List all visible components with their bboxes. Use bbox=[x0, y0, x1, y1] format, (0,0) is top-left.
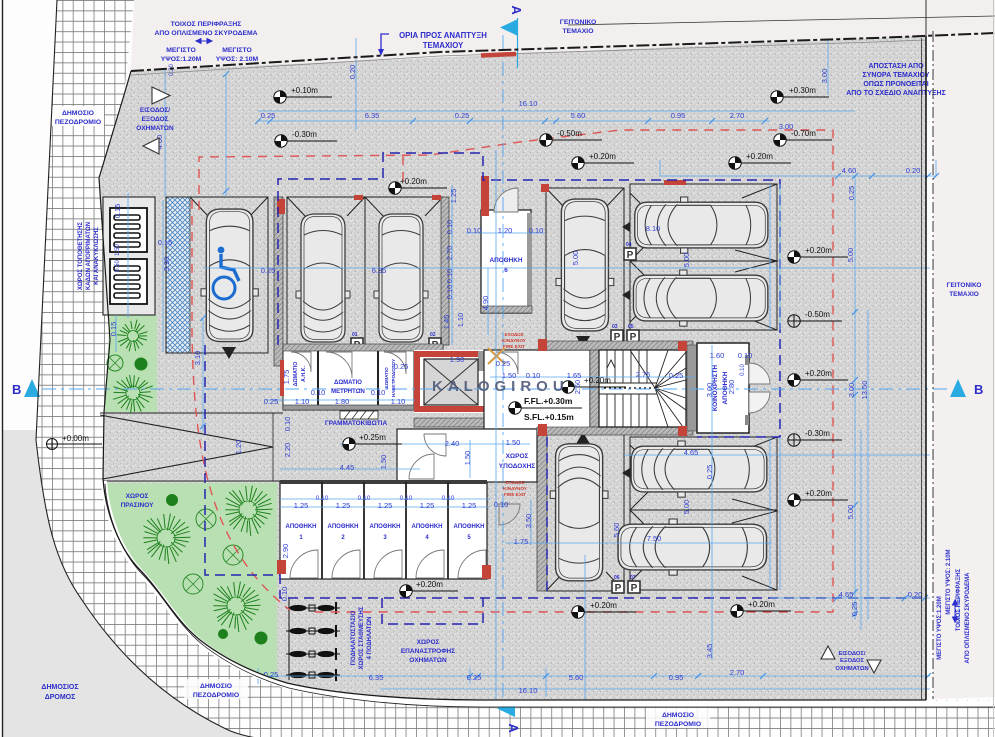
svg-text:ΑΠΟΘΗΚΗ: ΑΠΟΘΗΚΗ bbox=[722, 371, 729, 404]
svg-text:3.50: 3.50 bbox=[524, 514, 533, 529]
svg-text:0.95: 0.95 bbox=[671, 111, 686, 120]
svg-text:ΑΠΟΘΗΚΗ: ΑΠΟΘΗΚΗ bbox=[412, 524, 443, 530]
svg-text:+0.30m: +0.30m bbox=[789, 86, 816, 95]
svg-text:03: 03 bbox=[612, 324, 618, 330]
svg-text:A: A bbox=[506, 723, 521, 733]
svg-text:0.10: 0.10 bbox=[316, 495, 329, 502]
svg-text:ΟΠΩΣ ΠΡΟΝΟΕΙΤΑΙ: ΟΠΩΣ ΠΡΟΝΟΕΙΤΑΙ bbox=[863, 81, 928, 88]
svg-text:ΟΡΙΑ ΠΡΟΣ ΑΝΑΠΤΥΞΗ: ΟΡΙΑ ΠΡΟΣ ΑΝΑΠΤΥΞΗ bbox=[399, 31, 487, 40]
svg-text:0.10: 0.10 bbox=[526, 371, 541, 380]
svg-text:ΕΞΟΔΟΣ: ΕΞΟΔΟΣ bbox=[840, 658, 864, 664]
svg-text:1.25: 1.25 bbox=[378, 501, 393, 510]
svg-text:0.10: 0.10 bbox=[445, 269, 454, 284]
svg-text:ΧΩΡΟΣ ΣΤΑΘΜΕΥΣΗΣ: ΧΩΡΟΣ ΣΤΑΘΜΕΥΣΗΣ bbox=[359, 606, 365, 669]
svg-text:0.50: 0.50 bbox=[115, 260, 121, 272]
svg-text:0.25: 0.25 bbox=[850, 602, 859, 617]
svg-text:5.00: 5.00 bbox=[846, 505, 855, 520]
svg-text:0.10: 0.10 bbox=[311, 388, 326, 397]
svg-text:ΓΕΙΤΟΝΙΚΟ: ΓΕΙΤΟΝΙΚΟ bbox=[947, 282, 982, 289]
svg-text:2.70: 2.70 bbox=[730, 668, 745, 677]
svg-text:0.15: 0.15 bbox=[113, 204, 122, 219]
svg-text:5.00: 5.00 bbox=[571, 251, 580, 266]
svg-text:8.10: 8.10 bbox=[646, 224, 661, 233]
svg-text:-0.70m: -0.70m bbox=[791, 129, 816, 138]
svg-text:ΔΡΟΜΟΣ: ΔΡΟΜΟΣ bbox=[45, 694, 76, 701]
svg-text:1.75: 1.75 bbox=[514, 537, 529, 546]
svg-text:4.60: 4.60 bbox=[842, 166, 857, 175]
svg-text:ΑΠΟΣΤΑΣΗ ΑΠΟ: ΑΠΟΣΤΑΣΗ ΑΠΟ bbox=[868, 63, 924, 70]
svg-text:ΠΕΖΟΔΡΟΜΙΟ: ΠΕΖΟΔΡΟΜΙΟ bbox=[55, 119, 101, 126]
svg-text:ΔΗΜΟΣΙΟ: ΔΗΜΟΣΙΟ bbox=[62, 110, 94, 117]
svg-text:4.45: 4.45 bbox=[340, 463, 355, 472]
svg-text:0.95: 0.95 bbox=[669, 673, 684, 682]
svg-text:7.50: 7.50 bbox=[647, 534, 662, 543]
svg-text:1.45: 1.45 bbox=[442, 315, 451, 330]
svg-text:1.20: 1.20 bbox=[234, 440, 243, 455]
svg-text:ΔΗΜΟΣΙΟ: ΔΗΜΟΣΙΟ bbox=[662, 712, 694, 719]
svg-text:01: 01 bbox=[352, 332, 358, 338]
svg-text:+0.20m: +0.20m bbox=[416, 580, 443, 589]
svg-text:ΜΕΓΙΣΤΟ ΥΨΟΣ: 2.10Μ: ΜΕΓΙΣΤΟ ΥΨΟΣ: 2.10Μ bbox=[946, 549, 952, 614]
svg-text:0.10: 0.10 bbox=[467, 226, 482, 235]
svg-text:1.50: 1.50 bbox=[379, 455, 388, 470]
svg-text:6: 6 bbox=[504, 267, 508, 274]
svg-text:ΑΠΟΘΗΚΗ: ΑΠΟΘΗΚΗ bbox=[489, 257, 522, 264]
svg-text:KALOGIROU: KALOGIROU bbox=[432, 378, 569, 395]
svg-text:1.50: 1.50 bbox=[506, 438, 521, 447]
svg-text:-0.30m: -0.30m bbox=[805, 429, 830, 438]
svg-text:0.15: 0.15 bbox=[158, 238, 173, 247]
svg-text:1.60: 1.60 bbox=[710, 351, 725, 360]
svg-text:ΤΟΙΧΟΣ ΠΕΡΙΦΡΑΞΗΣ: ΤΟΙΧΟΣ ΠΕΡΙΦΡΑΞΗΣ bbox=[171, 21, 242, 28]
svg-text:ΔΩΜΑΤΙΟ: ΔΩΜΑΤΙΟ bbox=[293, 362, 299, 387]
svg-text:0.25: 0.25 bbox=[264, 397, 279, 406]
svg-text:ΜΕΓΙΣΤΟ: ΜΕΓΙΣΤΟ bbox=[166, 47, 196, 54]
svg-text:-0.50m: -0.50m bbox=[805, 310, 830, 319]
svg-text:07: 07 bbox=[630, 575, 636, 581]
svg-text:ΑΠΟΘΗΚΗ: ΑΠΟΘΗΚΗ bbox=[454, 524, 485, 530]
svg-text:+0.20m: +0.20m bbox=[805, 369, 832, 378]
svg-text:ΕΠΑΝΑΣΤΡΟΦΗΣ: ΕΠΑΝΑΣΤΡΟΦΗΣ bbox=[401, 648, 455, 655]
svg-text:ΑΠΟ ΟΠΛΙΣΜΕΝΟ ΣΚΥΡΟΔΕΜΑ: ΑΠΟ ΟΠΛΙΣΜΕΝΟ ΣΚΥΡΟΔΕΜΑ bbox=[965, 572, 971, 664]
svg-text:ΑΠΟΘΗΚΗ: ΑΠΟΘΗΚΗ bbox=[286, 524, 317, 530]
svg-text:2.70: 2.70 bbox=[445, 246, 454, 261]
svg-text:1.10: 1.10 bbox=[391, 397, 406, 406]
svg-text:ΕΙΣΟΔΟΣ/: ΕΙΣΟΔΟΣ/ bbox=[140, 107, 170, 114]
svg-text:5.00: 5.00 bbox=[846, 248, 855, 263]
svg-text:S.FL.+0.15m: S.FL.+0.15m bbox=[524, 412, 574, 422]
svg-text:1.75: 1.75 bbox=[282, 370, 291, 385]
svg-text:3.10: 3.10 bbox=[193, 351, 202, 366]
svg-text:ΑΠΟ ΤΟ ΣΧΕΔΙΟ ΑΝΑΠΤΥΞΗΣ: ΑΠΟ ΤΟ ΣΧΕΔΙΟ ΑΝΑΠΤΥΞΗΣ bbox=[846, 90, 946, 97]
svg-text:ΔΗΜΟΣΙΟΣ: ΔΗΜΟΣΙΟΣ bbox=[41, 684, 78, 691]
svg-text:2.50: 2.50 bbox=[573, 380, 582, 395]
svg-text:0.25: 0.25 bbox=[847, 186, 856, 201]
svg-text:1.25: 1.25 bbox=[462, 501, 477, 510]
svg-text:Α.Η.Κ.: Α.Η.Κ. bbox=[301, 366, 307, 382]
svg-text:1.90: 1.90 bbox=[450, 355, 465, 364]
svg-text:ΕΞΟΔΟΣ: ΕΞΟΔΟΣ bbox=[506, 480, 525, 485]
svg-text:2.40: 2.40 bbox=[445, 439, 460, 448]
svg-text:16.10: 16.10 bbox=[519, 99, 538, 108]
svg-text:+0.20m: +0.20m bbox=[589, 152, 616, 161]
svg-text:1.25: 1.25 bbox=[420, 501, 435, 510]
svg-text:ΠΕΖΟΔΡΟΜΙΟ: ΠΕΖΟΔΡΟΜΙΟ bbox=[193, 692, 239, 699]
svg-text:04: 04 bbox=[626, 242, 632, 248]
svg-text:ΤΟΙΧΟΣ ΠΕΡΙΦΡΑΞΗΣ: ΤΟΙΧΟΣ ΠΕΡΙΦΡΑΞΗΣ bbox=[956, 568, 962, 631]
svg-text:1.50: 1.50 bbox=[502, 371, 517, 380]
svg-text:ΟΧΗΜΑΤΩΝ: ΟΧΗΜΑΤΩΝ bbox=[835, 666, 868, 672]
svg-text:+0.20m: +0.20m bbox=[805, 489, 832, 498]
svg-text:ΟΧΗΜΑΤΩΝ: ΟΧΗΜΑΤΩΝ bbox=[409, 657, 447, 664]
svg-text:-0.30m: -0.30m bbox=[292, 130, 317, 139]
svg-text:ΑΠΟ ΟΠΛΙΣΜΕΝΟ ΣΚΥΡΟΔΕΜΑ: ΑΠΟ ΟΠΛΙΣΜΕΝΟ ΣΚΥΡΟΔΕΜΑ bbox=[154, 30, 257, 37]
svg-text:1.80: 1.80 bbox=[335, 397, 350, 406]
svg-text:6.35: 6.35 bbox=[365, 111, 380, 120]
svg-text:A: A bbox=[509, 5, 524, 15]
svg-text:-0.50m: -0.50m bbox=[557, 129, 582, 138]
svg-text:ΧΩΡΟΣ: ΧΩΡΟΣ bbox=[506, 453, 529, 460]
svg-text:ΔΗΜΟΣΙΟ: ΔΗΜΟΣΙΟ bbox=[200, 683, 232, 690]
svg-text:+0.00m: +0.00m bbox=[62, 434, 89, 443]
svg-text:0.25: 0.25 bbox=[455, 111, 470, 120]
svg-text:4.65: 4.65 bbox=[839, 590, 854, 599]
svg-text:0.10: 0.10 bbox=[740, 364, 746, 376]
svg-text:1.25: 1.25 bbox=[449, 189, 458, 204]
svg-text:ΠΡΑΣΙΝΟΥ: ΠΡΑΣΙΝΟΥ bbox=[121, 502, 155, 509]
svg-text:3.00: 3.00 bbox=[847, 383, 856, 398]
svg-text:ΧΩΡΟΣ: ΧΩΡΟΣ bbox=[417, 639, 440, 646]
svg-text:ΚΙΝΔΥΝΟΥ: ΚΙΝΔΥΝΟΥ bbox=[503, 486, 527, 491]
svg-text:ΜΕΓΙΣΤΟ: ΜΕΓΙΣΤΟ bbox=[222, 47, 252, 54]
svg-text:ΜΕΤΡΗΤΩΝ: ΜΕΤΡΗΤΩΝ bbox=[331, 389, 365, 395]
svg-text:+0.20m: +0.20m bbox=[805, 246, 832, 255]
svg-text:0.25: 0.25 bbox=[496, 359, 511, 368]
svg-text:+0.20m: +0.20m bbox=[590, 601, 617, 610]
svg-text:1.65: 1.65 bbox=[567, 371, 582, 380]
svg-text:3.45: 3.45 bbox=[705, 644, 714, 659]
svg-text:0.15: 0.15 bbox=[109, 322, 118, 337]
svg-text:ΕΙΣΟΔΟΣ/: ΕΙΣΟΔΟΣ/ bbox=[839, 651, 866, 657]
svg-text:0.10: 0.10 bbox=[358, 495, 371, 502]
svg-text:0.10: 0.10 bbox=[738, 351, 753, 360]
svg-text:1.25: 1.25 bbox=[336, 501, 351, 510]
svg-text:2.70: 2.70 bbox=[730, 111, 745, 120]
svg-text:ΜΕΓΙΣΤΟ ΥΨΟΣ:1.20Μ: ΜΕΓΙΣΤΟ ΥΨΟΣ:1.20Μ bbox=[937, 596, 943, 659]
svg-text:5.00: 5.00 bbox=[682, 500, 691, 515]
svg-text:0.10: 0.10 bbox=[283, 417, 292, 432]
svg-text:ΤΕΜΑΧΙΟ: ΤΕΜΑΧΙΟ bbox=[949, 291, 979, 298]
svg-text:2.20: 2.20 bbox=[283, 443, 292, 458]
svg-text:ΥΨΟΣ: 2.10Μ: ΥΨΟΣ: 2.10Μ bbox=[216, 56, 259, 63]
svg-text:ΠΟΔΗΛΑΤΟΣΤΑΣΙΟ: ΠΟΔΗΛΑΤΟΣΤΑΣΙΟ bbox=[351, 610, 357, 665]
svg-text:1.50: 1.50 bbox=[115, 244, 121, 256]
svg-text:ΑΠΟΘΗΚΗ: ΑΠΟΘΗΚΗ bbox=[370, 524, 401, 530]
svg-text:0.10: 0.10 bbox=[442, 495, 455, 502]
svg-text:FIRE EXIT: FIRE EXIT bbox=[503, 344, 525, 349]
svg-text:3.00: 3.00 bbox=[779, 122, 794, 131]
svg-text:0.20: 0.20 bbox=[169, 64, 175, 76]
svg-text:ΥΠΟΔΟΧΗΣ: ΥΠΟΔΟΧΗΣ bbox=[499, 463, 535, 470]
svg-text:0.25: 0.25 bbox=[467, 673, 482, 682]
svg-text:ΗΛΕΚΤΡΟΔΟΤΟΥ: ΗΛΕΚΤΡΟΔΟΤΟΥ bbox=[391, 359, 396, 397]
svg-text:4.65: 4.65 bbox=[684, 448, 699, 457]
svg-text:B: B bbox=[12, 382, 21, 397]
svg-text:0.10: 0.10 bbox=[494, 500, 509, 509]
svg-text:ΔΩΜΑΤΙΟ: ΔΩΜΑΤΙΟ bbox=[334, 380, 362, 386]
svg-text:ΣΥΝΟΡΑ ΤΕΜΑΧΙΟΥ: ΣΥΝΟΡΑ ΤΕΜΑΧΙΟΥ bbox=[863, 72, 930, 79]
svg-text:4 ΠΟΔΗΛΑΤΩΝ: 4 ΠΟΔΗΛΑΤΩΝ bbox=[367, 616, 373, 659]
svg-text:ΚΑΙ ΑΝΑΚΥΚΛΩΣΗΣ: ΚΑΙ ΑΝΑΚΥΚΛΩΣΗΣ bbox=[94, 227, 100, 285]
svg-text:ΔΩΜΑΤΙΟ: ΔΩΜΑΤΙΟ bbox=[384, 367, 389, 389]
svg-text:6.35: 6.35 bbox=[369, 673, 384, 682]
svg-text:06: 06 bbox=[614, 575, 620, 581]
svg-text:0.20: 0.20 bbox=[348, 65, 357, 80]
svg-text:5.60: 5.60 bbox=[571, 111, 586, 120]
svg-text:1.25: 1.25 bbox=[294, 501, 309, 510]
svg-text:0.25: 0.25 bbox=[261, 111, 276, 120]
svg-text:02: 02 bbox=[430, 332, 436, 338]
svg-text:0.10: 0.10 bbox=[445, 220, 454, 235]
svg-text:0.10: 0.10 bbox=[529, 226, 544, 235]
svg-text:5.60: 5.60 bbox=[612, 523, 621, 538]
svg-text:+0.10m: +0.10m bbox=[291, 86, 318, 95]
svg-text:1.10: 1.10 bbox=[295, 397, 310, 406]
svg-text:ΟΧΗΜΑΤΩΝ: ΟΧΗΜΑΤΩΝ bbox=[136, 125, 174, 132]
svg-text:FIRE EXIT: FIRE EXIT bbox=[504, 492, 526, 497]
svg-text:+0.20m: +0.20m bbox=[748, 600, 775, 609]
svg-text:3.00: 3.00 bbox=[820, 69, 829, 84]
svg-text:+0.25m: +0.25m bbox=[359, 433, 386, 442]
svg-text:ΚΙΝΔΥΝΟΥ: ΚΙΝΔΥΝΟΥ bbox=[502, 338, 526, 343]
svg-text:ΚΑΔΩΝ ΑΠΟΡΡΙΜΑΤΩΝ: ΚΑΔΩΝ ΑΠΟΡΡΙΜΑΤΩΝ bbox=[86, 222, 92, 290]
svg-text:ΤΕΜΑΧΙΟΥ: ΤΕΜΑΧΙΟΥ bbox=[423, 41, 464, 50]
svg-text:16.10: 16.10 bbox=[519, 686, 538, 695]
svg-text:ΑΠΟΘΗΚΗ: ΑΠΟΘΗΚΗ bbox=[328, 524, 359, 530]
svg-text:1.50: 1.50 bbox=[463, 451, 472, 466]
svg-text:0.25: 0.25 bbox=[669, 371, 684, 380]
svg-text:13.50: 13.50 bbox=[860, 381, 869, 400]
svg-text:B: B bbox=[974, 382, 983, 397]
svg-text:05: 05 bbox=[628, 324, 634, 330]
svg-text:ΕΞΟΔΟΣ: ΕΞΟΔΟΣ bbox=[142, 116, 169, 123]
svg-text:ΕΞΟΔΟΣ: ΕΞΟΔΟΣ bbox=[505, 332, 524, 337]
svg-text:+0.20m: +0.20m bbox=[584, 376, 611, 385]
svg-text:+0.20m: +0.20m bbox=[746, 152, 773, 161]
svg-text:+0.20m: +0.20m bbox=[400, 177, 427, 186]
svg-text:0.20: 0.20 bbox=[906, 166, 921, 175]
svg-text:2.90: 2.90 bbox=[281, 544, 290, 559]
svg-text:ΚΟΙΝΟΧΡΗΣΤΗ: ΚΟΙΝΟΧΡΗΣΤΗ bbox=[712, 365, 719, 412]
svg-text:5.00: 5.00 bbox=[682, 253, 691, 268]
svg-text:1.20: 1.20 bbox=[498, 226, 513, 235]
svg-text:ΠΕΖΟΔΡΟΜΙΟ: ΠΕΖΟΔΡΟΜΙΟ bbox=[655, 721, 701, 728]
svg-text:F.FL.+0.30m: F.FL.+0.30m bbox=[524, 396, 573, 406]
svg-text:ΧΩΡΟΣ ΤΟΠΟΘΕΤΗΣΗΣ: ΧΩΡΟΣ ΤΟΠΟΘΕΤΗΣΗΣ bbox=[78, 222, 84, 291]
svg-text:ΤΕΜΑΧΙΟ: ΤΕΜΑΧΙΟ bbox=[563, 28, 594, 35]
svg-text:0.10: 0.10 bbox=[445, 285, 454, 300]
svg-text:4.90: 4.90 bbox=[481, 296, 490, 311]
svg-text:ΥΨΟΣ:1.20Μ: ΥΨΟΣ:1.20Μ bbox=[161, 56, 202, 63]
svg-text:1.10: 1.10 bbox=[456, 313, 465, 328]
svg-text:5.60: 5.60 bbox=[569, 673, 584, 682]
svg-text:0.25: 0.25 bbox=[705, 465, 714, 480]
svg-text:2.75: 2.75 bbox=[636, 370, 651, 379]
svg-text:0.10: 0.10 bbox=[400, 495, 413, 502]
svg-text:ΧΩΡΟΣ: ΧΩΡΟΣ bbox=[126, 493, 149, 500]
svg-text:6.35: 6.35 bbox=[372, 266, 387, 275]
svg-text:0.25: 0.25 bbox=[261, 266, 276, 275]
svg-text:ΓΡΑΜΜΑΤΟΚΙΒΩΤΙΑ: ΓΡΑΜΜΑΤΟΚΙΒΩΤΙΑ bbox=[325, 420, 388, 427]
svg-text:3.90: 3.90 bbox=[162, 257, 171, 272]
svg-text:0.10: 0.10 bbox=[280, 587, 289, 602]
svg-text:0.20: 0.20 bbox=[908, 590, 923, 599]
